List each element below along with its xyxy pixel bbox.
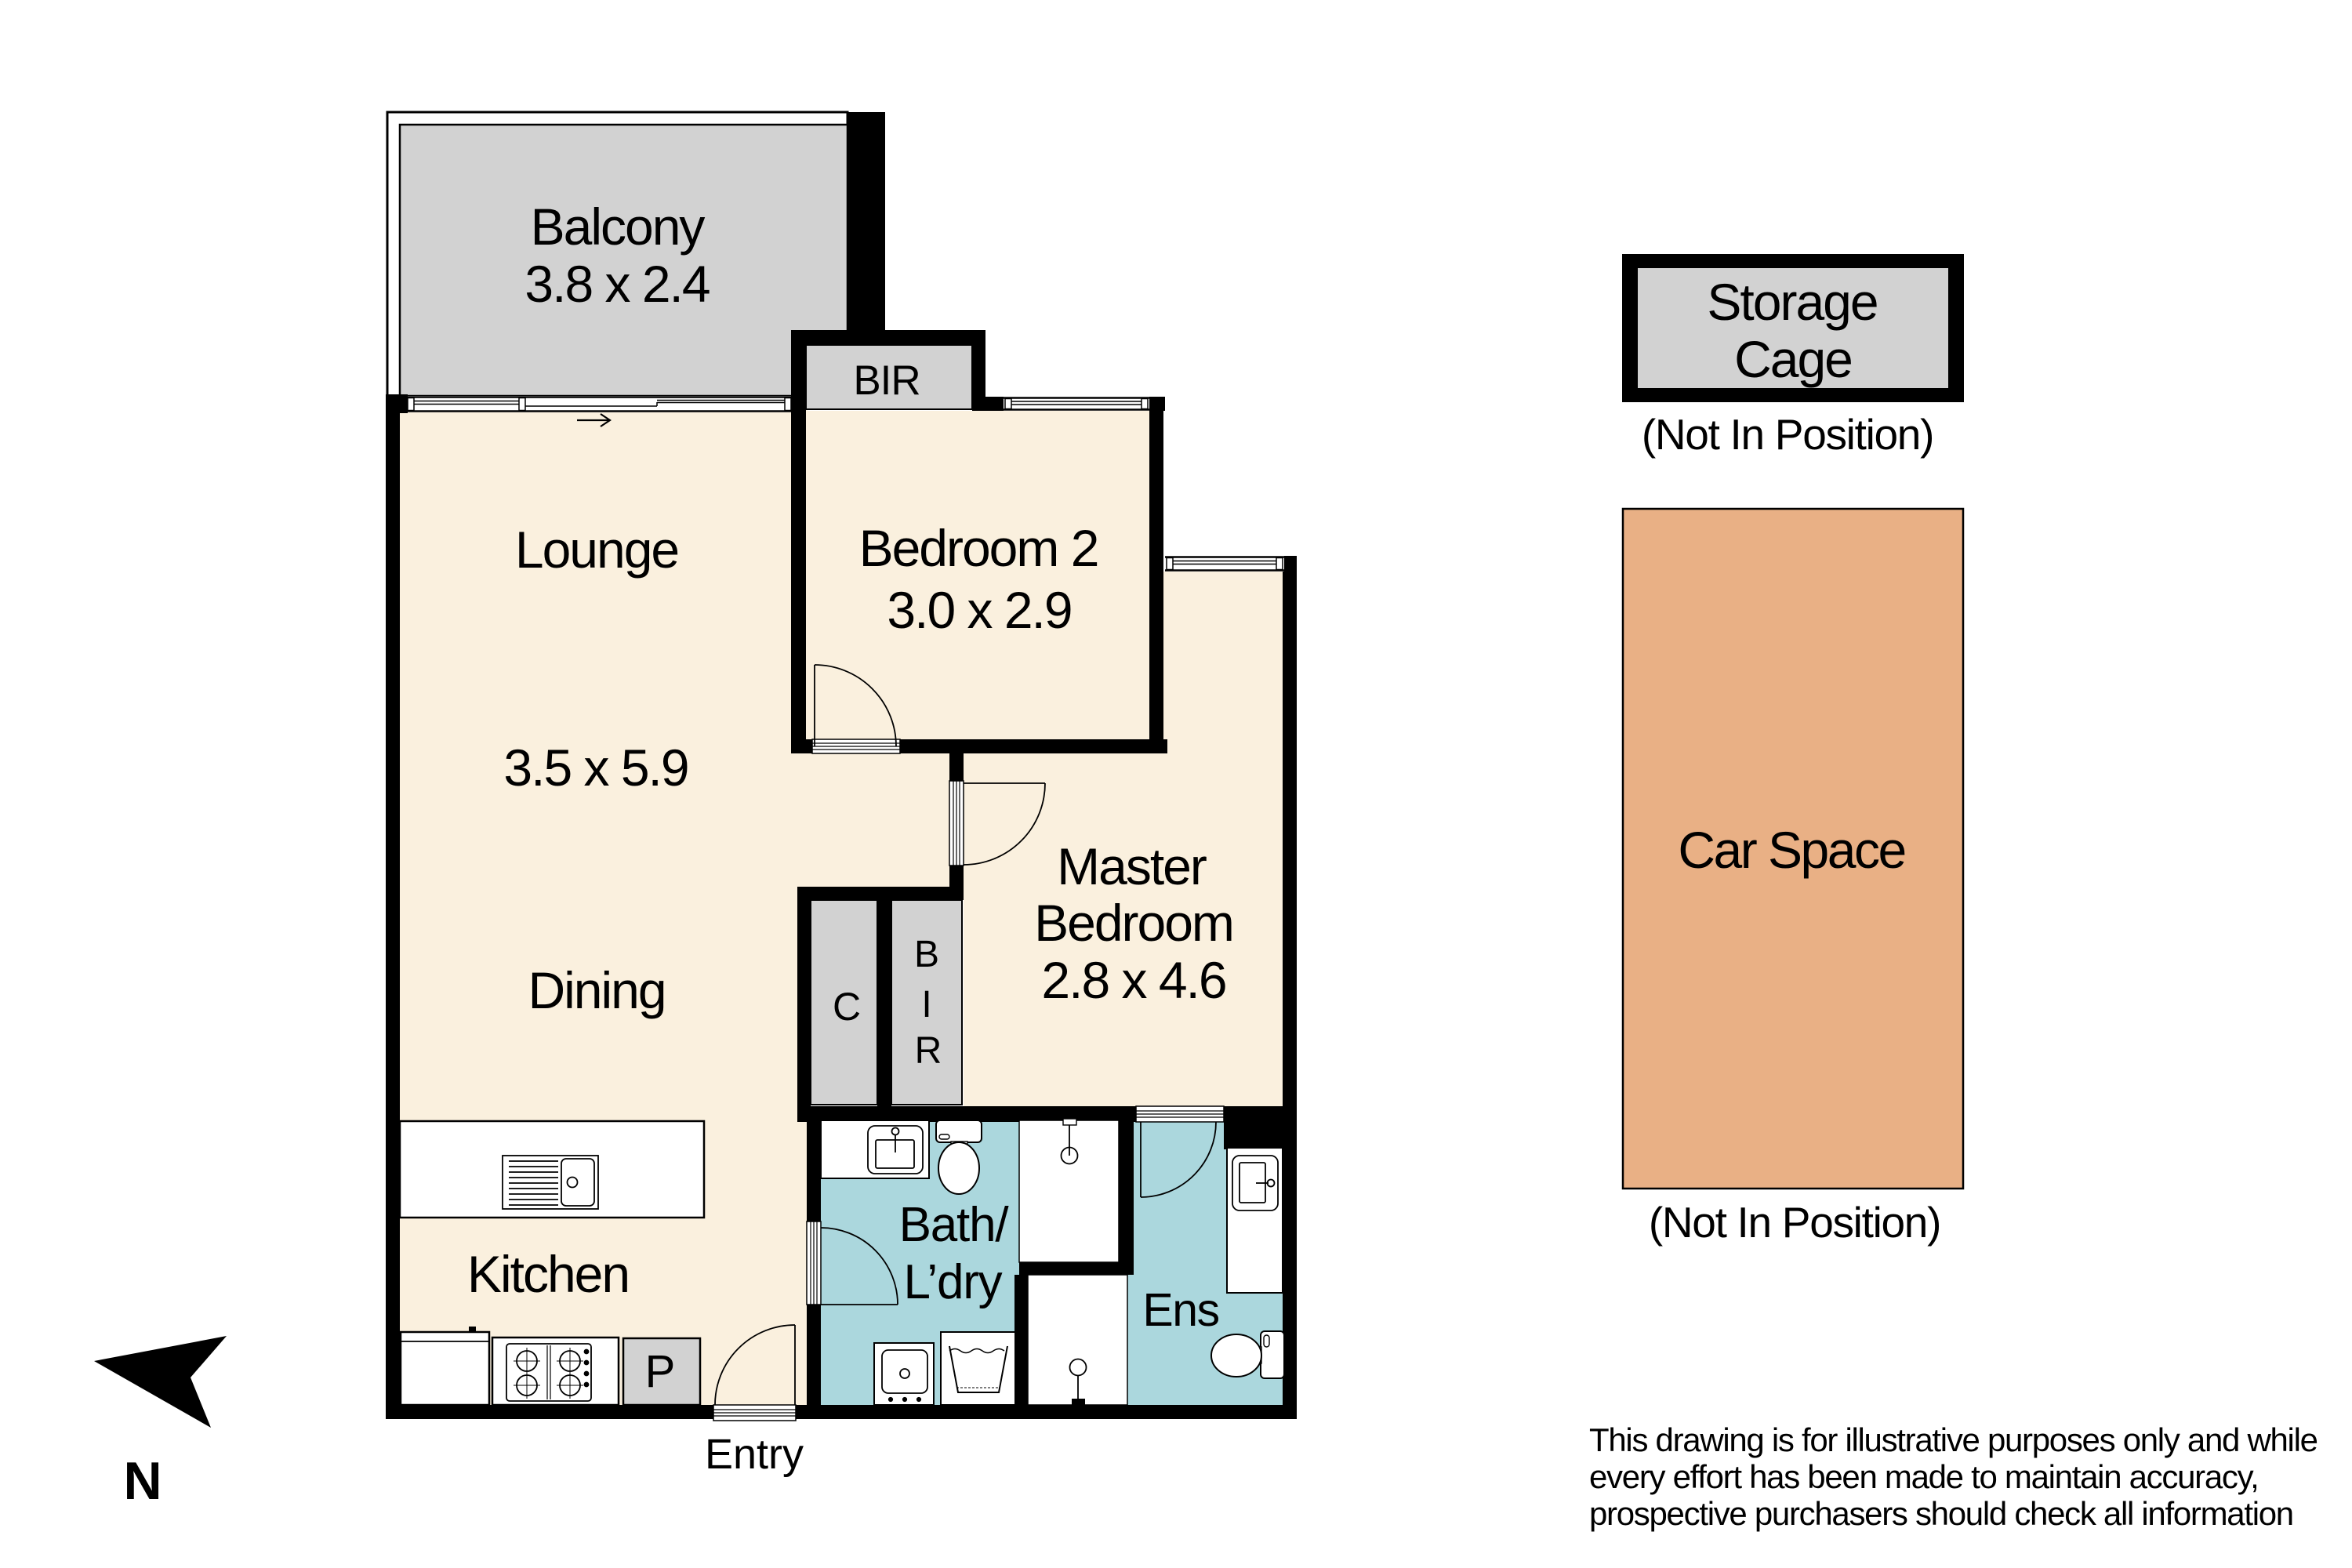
- svg-text:Lounge: Lounge: [515, 521, 678, 579]
- svg-text:Car Space: Car Space: [1678, 821, 1904, 879]
- svg-text:C: C: [833, 985, 861, 1029]
- svg-text:Kitchen: Kitchen: [467, 1245, 629, 1303]
- svg-text:Bedroom 2: Bedroom 2: [859, 519, 1098, 577]
- svg-text:BIR: BIR: [853, 358, 920, 404]
- svg-text:R: R: [915, 1030, 942, 1072]
- svg-text:Ens: Ens: [1142, 1284, 1218, 1336]
- svg-text:(Not In Position): (Not In Position): [1642, 410, 1933, 459]
- svg-text:Cage: Cage: [1734, 330, 1852, 388]
- svg-text:N: N: [123, 1451, 162, 1511]
- svg-text:Storage: Storage: [1707, 273, 1877, 331]
- svg-text:Bedroom: Bedroom: [1034, 894, 1233, 952]
- svg-text:L’dry: L’dry: [904, 1255, 1003, 1309]
- svg-text:Dining: Dining: [528, 961, 665, 1019]
- svg-text:2.8 x 4.6: 2.8 x 4.6: [1041, 951, 1225, 1009]
- svg-text:Balcony: Balcony: [531, 198, 706, 256]
- svg-text:P: P: [645, 1346, 676, 1397]
- svg-text:3.5 x 5.9: 3.5 x 5.9: [503, 739, 688, 797]
- svg-text:I: I: [921, 984, 931, 1025]
- svg-text:B: B: [914, 934, 939, 975]
- svg-text:prospective purchasers should: prospective purchasers should check all …: [1589, 1495, 2293, 1532]
- svg-text:This drawing is for illustrati: This drawing is for illustrative purpose…: [1589, 1421, 2318, 1458]
- svg-text:every effort has been made to: every effort has been made to maintain a…: [1589, 1458, 2259, 1495]
- svg-text:3.0 x 2.9: 3.0 x 2.9: [887, 581, 1071, 639]
- svg-text:Bath/: Bath/: [899, 1198, 1010, 1252]
- svg-text:Master: Master: [1057, 837, 1207, 895]
- svg-text:3.8 x 2.4: 3.8 x 2.4: [524, 255, 709, 313]
- svg-text:Entry: Entry: [705, 1431, 804, 1478]
- svg-text:(Not In Position): (Not In Position): [1649, 1198, 1940, 1247]
